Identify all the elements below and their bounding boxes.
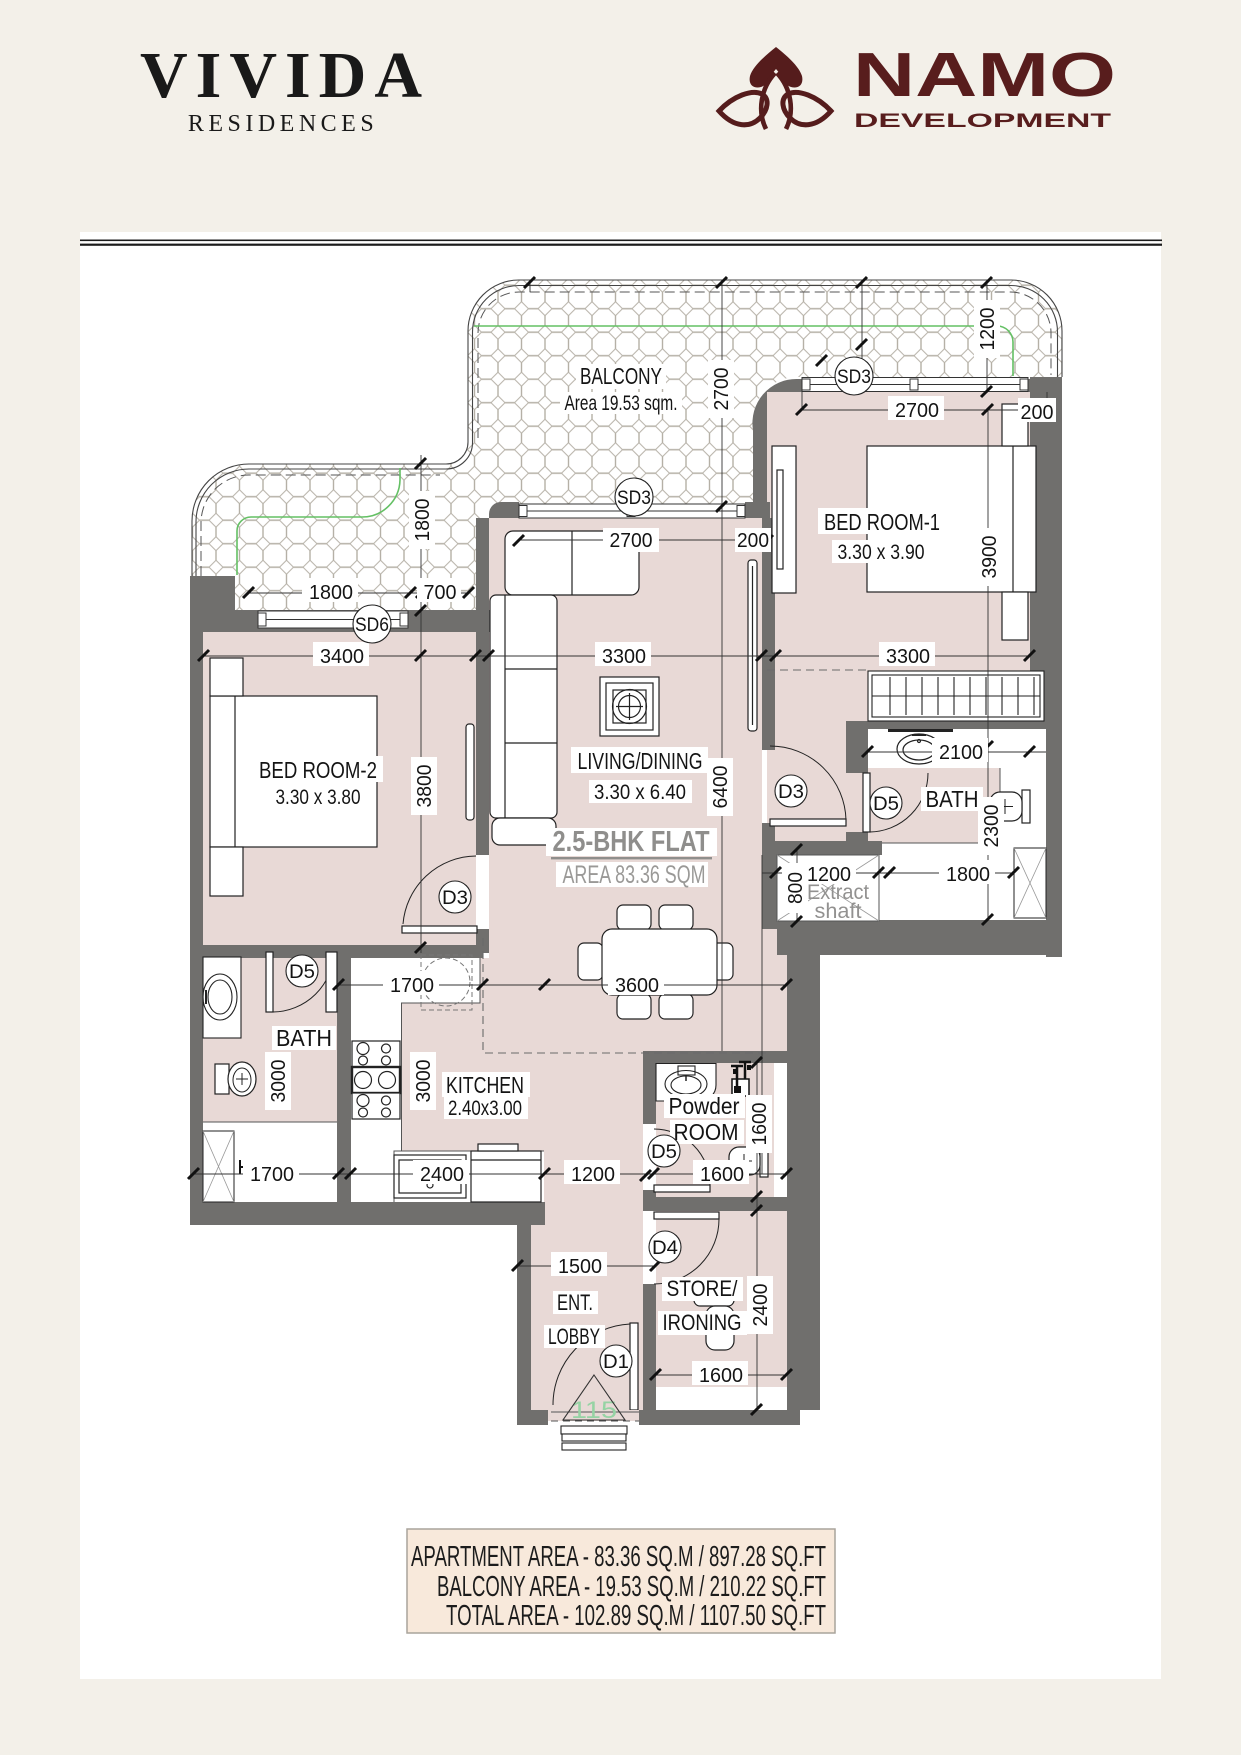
svg-text:2300: 2300	[980, 805, 1003, 848]
svg-text:2.40x3.00: 2.40x3.00	[448, 1097, 522, 1120]
svg-text:3600: 3600	[615, 974, 659, 997]
svg-text:3300: 3300	[602, 645, 646, 668]
svg-text:Area 19.53 sqm.: Area 19.53 sqm.	[565, 392, 678, 415]
svg-text:1600: 1600	[700, 1163, 744, 1186]
svg-text:D4: D4	[652, 1237, 678, 1259]
svg-text:BALCONY AREA - 19.53 SQ.M / 21: BALCONY AREA - 19.53 SQ.M / 210.22 SQ.FT	[437, 1571, 826, 1603]
svg-text:D5: D5	[873, 793, 899, 815]
svg-text:3.30 x 3.80: 3.30 x 3.80	[276, 786, 361, 809]
svg-text:200: 200	[1021, 401, 1054, 424]
svg-text:D5: D5	[651, 1141, 677, 1163]
svg-text:1600: 1600	[699, 1364, 743, 1387]
svg-text:6400: 6400	[709, 766, 732, 809]
svg-text:1800: 1800	[411, 499, 434, 542]
svg-text:BALCONY: BALCONY	[580, 363, 662, 389]
svg-text:1700: 1700	[390, 974, 434, 997]
svg-text:VIVIDA: VIVIDA	[140, 39, 430, 112]
svg-text:LOBBY: LOBBY	[548, 1324, 600, 1349]
svg-text:BED ROOM-1: BED ROOM-1	[824, 509, 940, 535]
svg-text:2400: 2400	[749, 1284, 772, 1327]
svg-text:3.30 x 3.90: 3.30 x 3.90	[838, 541, 925, 564]
svg-text:800: 800	[784, 872, 807, 904]
svg-text:TOTAL AREA - 102.89 SQ.M / 110: TOTAL AREA - 102.89 SQ.M / 1107.50 SQ.FT	[446, 1600, 826, 1632]
svg-text:1800: 1800	[309, 581, 353, 604]
svg-text:3800: 3800	[413, 765, 436, 808]
svg-text:AREA 83.36 SQM: AREA 83.36 SQM	[563, 861, 706, 889]
svg-text:BATH: BATH	[276, 1025, 332, 1051]
svg-text:BED ROOM-2: BED ROOM-2	[259, 757, 377, 783]
svg-text:D5: D5	[289, 961, 315, 983]
svg-text:D3: D3	[778, 781, 804, 803]
svg-text:2100: 2100	[939, 741, 983, 764]
svg-text:LIVING/DINING: LIVING/DINING	[578, 748, 703, 774]
svg-text:3000: 3000	[412, 1060, 435, 1103]
svg-text:1200: 1200	[976, 308, 999, 351]
svg-text:NAMO: NAMO	[853, 41, 1116, 110]
svg-text:1200: 1200	[571, 1163, 615, 1186]
svg-text:KITCHEN: KITCHEN	[446, 1072, 524, 1098]
svg-text:ROOM: ROOM	[674, 1119, 739, 1145]
svg-text:ENT.: ENT.	[557, 1290, 593, 1315]
svg-text:2400: 2400	[420, 1163, 464, 1186]
svg-text:Powder: Powder	[669, 1093, 740, 1119]
svg-text:2.5-BHK FLAT: 2.5-BHK FLAT	[553, 826, 710, 858]
svg-text:700: 700	[424, 581, 457, 604]
svg-text:D1: D1	[603, 1351, 629, 1373]
svg-text:200: 200	[737, 529, 769, 552]
svg-text:3000: 3000	[267, 1060, 290, 1103]
svg-text:1500: 1500	[558, 1255, 602, 1278]
svg-text:2700: 2700	[610, 529, 653, 552]
svg-text:3.30 x 6.40: 3.30 x 6.40	[594, 781, 686, 804]
svg-text:1800: 1800	[946, 863, 990, 886]
svg-text:1700: 1700	[250, 1163, 294, 1186]
svg-text:3300: 3300	[886, 645, 930, 668]
svg-text:D3: D3	[442, 887, 468, 909]
svg-text:1600: 1600	[748, 1103, 771, 1146]
svg-text:shaft: shaft	[815, 900, 862, 923]
svg-text:SD3: SD3	[617, 487, 651, 509]
svg-text:BATH: BATH	[926, 786, 979, 812]
svg-text:RESIDENCES: RESIDENCES	[188, 111, 378, 137]
svg-text:3400: 3400	[320, 645, 364, 668]
svg-text:STORE/: STORE/	[667, 1276, 739, 1301]
svg-text:SD3: SD3	[837, 366, 871, 388]
svg-text:APARTMENT AREA - 83.36 SQ.M /: APARTMENT AREA - 83.36 SQ.M / 897.28 SQ.…	[411, 1541, 826, 1573]
svg-text:SD6: SD6	[355, 614, 389, 636]
svg-text:3900: 3900	[978, 536, 1001, 579]
svg-text:2700: 2700	[710, 368, 733, 411]
svg-text:IRONING: IRONING	[663, 1310, 742, 1335]
svg-text:DEVELOPMENT: DEVELOPMENT	[854, 111, 1112, 132]
svg-text:2700: 2700	[895, 399, 939, 422]
